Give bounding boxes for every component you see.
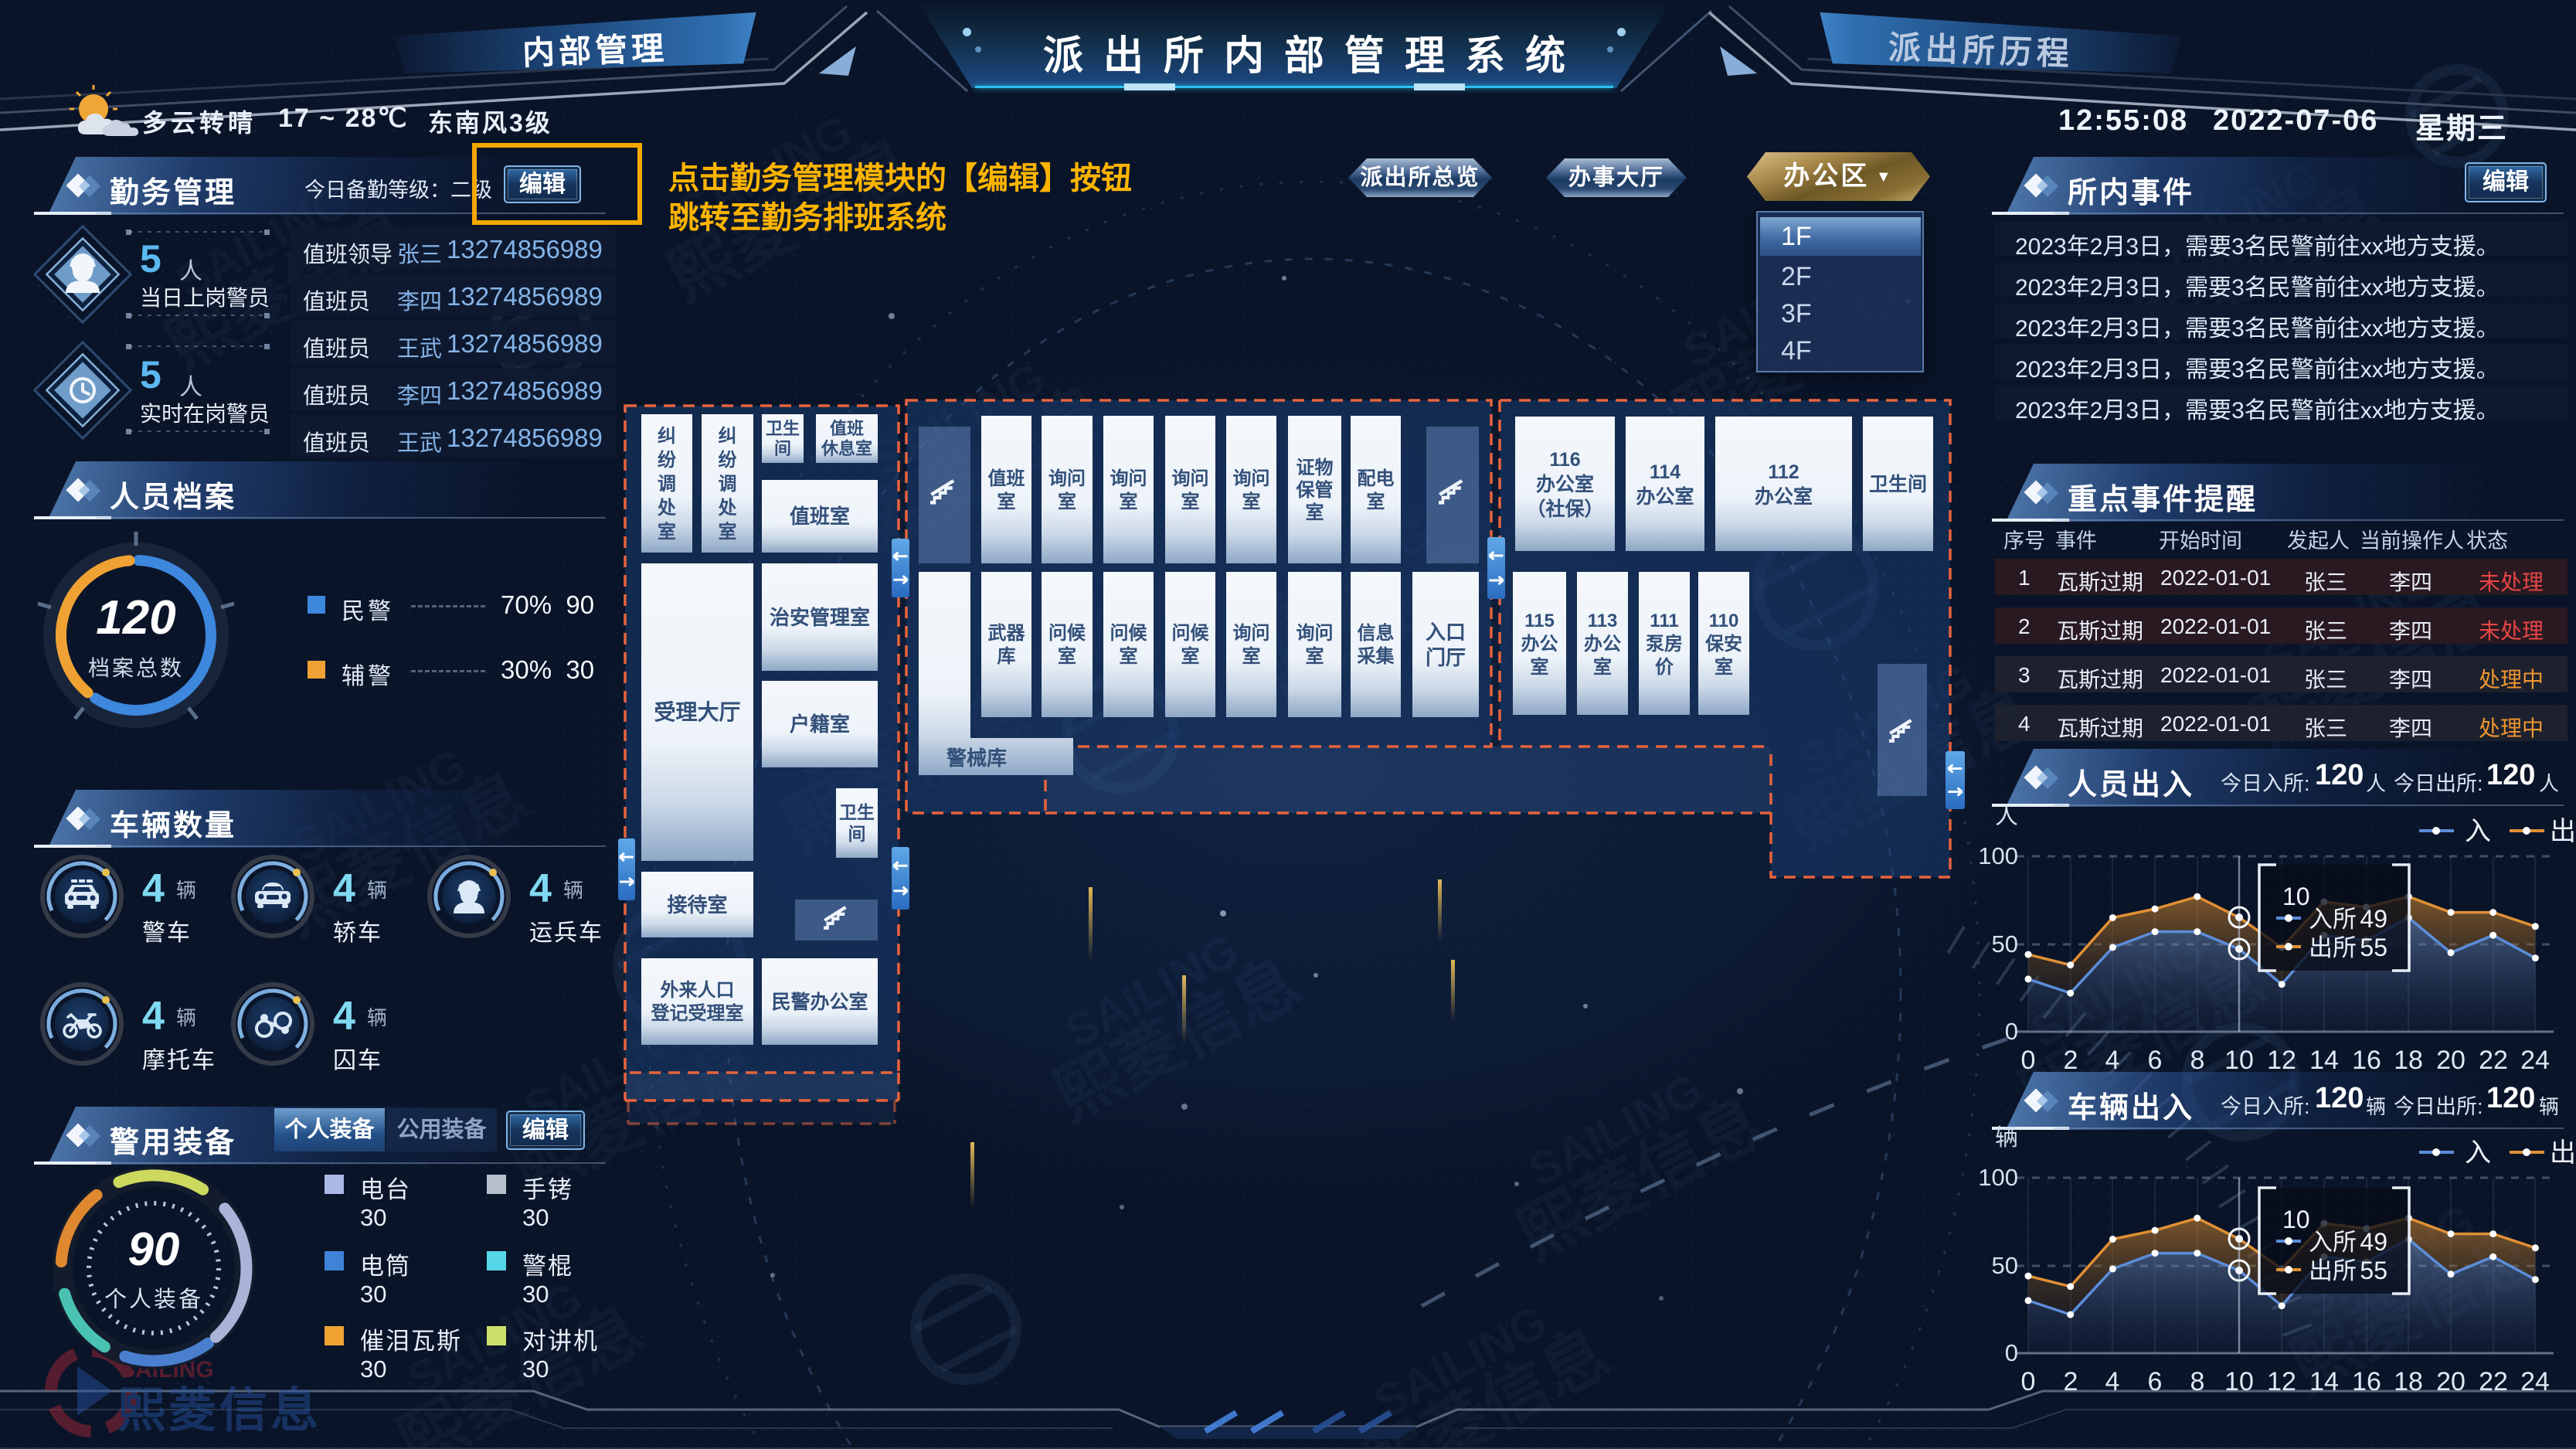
svg-text:20: 20	[2436, 1046, 2466, 1075]
svg-text:55: 55	[2360, 934, 2387, 961]
svg-text:120: 120	[96, 591, 175, 645]
svg-text:49: 49	[2360, 1228, 2387, 1256]
svg-text:卫生间: 卫生间	[1869, 474, 1927, 495]
svg-text:纠纷调处室: 纠纷调处室	[718, 426, 737, 543]
svg-text:16: 16	[2352, 1046, 2381, 1075]
svg-text:入: 入	[2465, 1138, 2491, 1168]
svg-text:12: 12	[2267, 1367, 2296, 1396]
svg-text:24: 24	[2520, 1367, 2550, 1396]
svg-text:10: 10	[2224, 1367, 2254, 1396]
svg-text:4: 4	[2105, 1367, 2120, 1396]
svg-text:50: 50	[1992, 930, 2018, 957]
svg-text:10: 10	[2282, 883, 2310, 910]
svg-text:20: 20	[2436, 1367, 2466, 1396]
svg-text:出: 出	[2550, 817, 2576, 846]
svg-text:22: 22	[2479, 1367, 2508, 1396]
svg-text:49: 49	[2360, 905, 2387, 933]
svg-text:受理大厅: 受理大厅	[654, 700, 740, 724]
svg-text:12: 12	[2267, 1046, 2296, 1075]
svg-text:个人装备: 个人装备	[104, 1287, 203, 1312]
svg-text:24: 24	[2520, 1046, 2550, 1075]
svg-text:0: 0	[2021, 1367, 2036, 1396]
svg-text:入: 入	[2465, 817, 2491, 846]
svg-text:入所: 入所	[2309, 906, 2357, 933]
svg-text:接待室: 接待室	[667, 893, 727, 917]
svg-text:辆: 辆	[1995, 1125, 2018, 1151]
svg-text:入所: 入所	[2309, 1229, 2357, 1256]
svg-text:治安管理室: 治安管理室	[770, 606, 870, 629]
svg-text:4: 4	[2105, 1046, 2120, 1075]
svg-text:8: 8	[2190, 1367, 2205, 1396]
svg-text:10: 10	[2282, 1206, 2310, 1233]
svg-text:16: 16	[2352, 1367, 2381, 1396]
svg-text:55: 55	[2360, 1257, 2387, 1284]
svg-text:50: 50	[1992, 1252, 2018, 1279]
svg-text:2: 2	[2064, 1046, 2078, 1075]
svg-text:0: 0	[2005, 1018, 2018, 1045]
svg-text:户籍室: 户籍室	[790, 713, 850, 736]
svg-text:2: 2	[2064, 1367, 2078, 1396]
svg-text:民警办公室: 民警办公室	[771, 991, 868, 1013]
svg-text:22: 22	[2479, 1046, 2508, 1075]
svg-text:出所: 出所	[2309, 1257, 2357, 1284]
svg-text:18: 18	[2394, 1046, 2423, 1075]
svg-text:14: 14	[2309, 1046, 2339, 1075]
svg-text:10: 10	[2224, 1046, 2254, 1075]
svg-text:出所: 出所	[2309, 934, 2357, 961]
svg-text:6: 6	[2148, 1367, 2163, 1396]
svg-text:100: 100	[1978, 1164, 2018, 1191]
svg-text:6: 6	[2148, 1046, 2163, 1075]
svg-text:纠纷调处室: 纠纷调处室	[657, 426, 676, 543]
svg-text:100: 100	[1978, 842, 2018, 869]
svg-text:14: 14	[2309, 1367, 2339, 1396]
svg-text:18: 18	[2394, 1367, 2423, 1396]
svg-text:人: 人	[1995, 804, 2018, 829]
svg-text:值班室: 值班室	[790, 505, 850, 528]
svg-text:0: 0	[2005, 1339, 2018, 1366]
svg-text:出: 出	[2550, 1138, 2576, 1168]
svg-text:0: 0	[2021, 1046, 2036, 1075]
svg-text:档案总数: 档案总数	[88, 656, 184, 680]
svg-text:8: 8	[2190, 1046, 2205, 1075]
svg-text:90: 90	[128, 1223, 180, 1275]
svg-text:警械库: 警械库	[946, 747, 1007, 770]
